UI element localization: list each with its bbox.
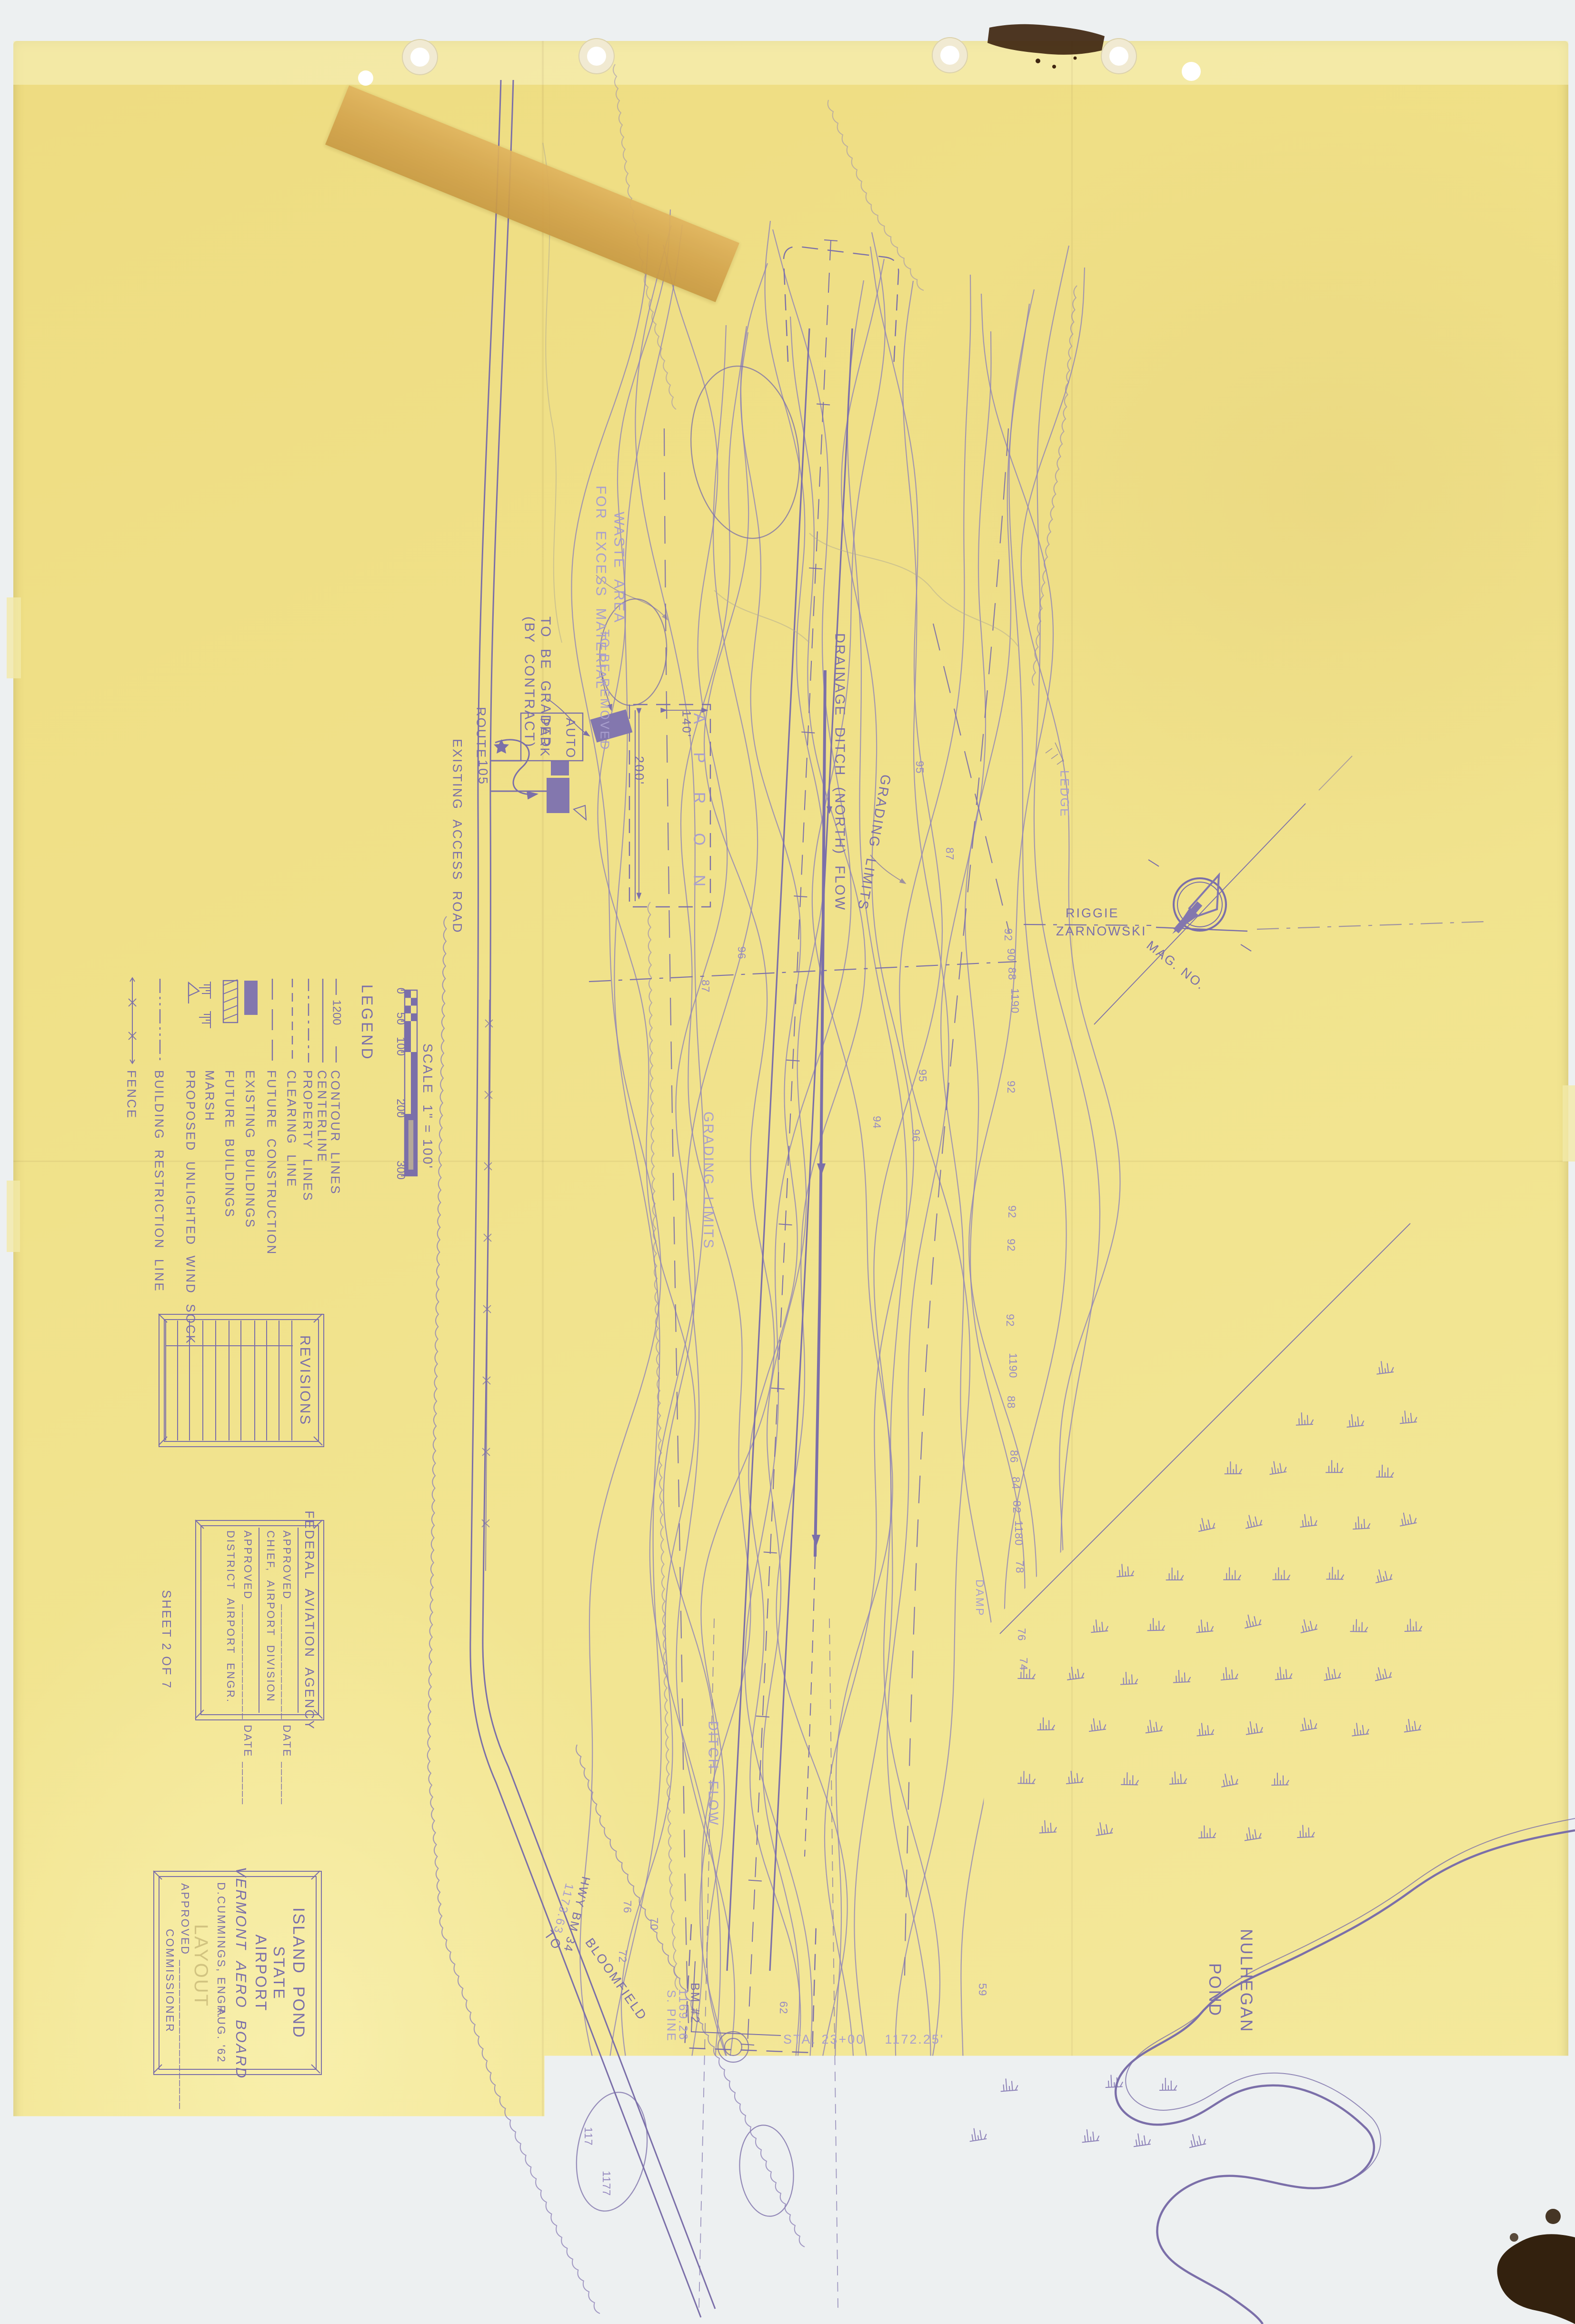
legend-item-contour-lines: CONTOUR LINES [329, 1070, 341, 1195]
fence-symbol [129, 978, 136, 1063]
map-label: 92 [1007, 1205, 1018, 1219]
marsh-symbol [1326, 1460, 1343, 1472]
north-arrow [1094, 756, 1352, 1024]
marsh-symbol [1272, 1567, 1290, 1579]
scale-tick-label: 0 [394, 988, 407, 994]
marsh-symbol [1038, 1819, 1057, 1833]
map-label: GRADING LIMITS [701, 1112, 715, 1250]
map-label: DAMP [974, 1579, 986, 1617]
tree-line [828, 100, 924, 290]
marsh-symbol [1220, 1666, 1238, 1680]
marsh-symbol [1186, 2132, 1206, 2148]
revisions-column-line [215, 1321, 216, 1440]
marsh-symbol [1121, 1772, 1138, 1785]
future-buildings-symbol [223, 980, 238, 1023]
faa-role-1: CHIEF, AIRPORT DIVISION [264, 1530, 277, 1702]
map-label: 140' [680, 710, 692, 738]
marsh-symbol [1066, 1665, 1085, 1680]
faa-divider-2 [259, 1528, 259, 1713]
map-label: BM #2 [688, 1983, 701, 2024]
marsh-symbol [1195, 1619, 1214, 1632]
faa-divider [298, 1528, 299, 1713]
existing-buildings-symbol [244, 981, 258, 1015]
revisions-column-line [291, 1321, 292, 1440]
map-label: 74 [1018, 1658, 1029, 1671]
tree-line [428, 916, 600, 2314]
edge-tape [1563, 1085, 1575, 1162]
title-org: VERMONT AERO BOARD [232, 1867, 249, 2079]
marsh-symbol [1298, 1513, 1317, 1527]
stains [987, 24, 1575, 2324]
faa-title: FEDERAL AVIATION AGENCY [302, 1510, 317, 1730]
edge-tape [7, 1181, 20, 1252]
map-label: 1177 [601, 2171, 612, 2196]
faa-approved-2: APPROVED ________________ DATE ______ [241, 1530, 254, 1806]
marsh-symbol [1296, 1825, 1315, 1838]
marsh-symbol [1166, 1568, 1184, 1580]
map-label: 1169.26 [677, 1989, 689, 2041]
legend-item-future-buildings: FUTURE BUILDINGS [223, 1070, 236, 1218]
map-label: 76 [622, 1900, 633, 1914]
marsh-symbol [1065, 1770, 1084, 1784]
marsh-symbol [1326, 1567, 1344, 1579]
map-label: 92 [1003, 928, 1014, 942]
marsh-symbol [1087, 1717, 1106, 1732]
legend-symbols: 1200 [129, 978, 343, 1063]
contour-line [745, 229, 851, 2167]
marsh-symbol [1224, 1461, 1242, 1474]
existing-building [547, 778, 569, 813]
marsh-symbol [1242, 1612, 1262, 1628]
title-date: AUG. '62 [215, 2008, 228, 2064]
contour-line [812, 232, 893, 2222]
legend-item-clearing-line: CLEARING LINE [285, 1070, 298, 1188]
map-label: 82 [1011, 1500, 1023, 1514]
marsh-symbol [1298, 1617, 1318, 1633]
marsh-symbol [1296, 1412, 1314, 1425]
map-label: 59 [977, 1983, 988, 1996]
tree-line [1032, 286, 1077, 685]
marsh-symbol [1404, 1619, 1422, 1631]
map-label: 78 [1014, 1560, 1026, 1574]
title-approved: APPROVED ____________________ [179, 1883, 191, 2110]
title-block: ISLAND POND STATE AIRPORT VERMONT AERO B… [153, 1871, 322, 2075]
title-line3: AIRPORT [252, 1934, 269, 2012]
marsh-symbol [199, 982, 210, 1028]
marsh-symbol [1159, 2078, 1177, 2090]
scale-bar: 050100200300 [394, 988, 417, 1180]
marsh-symbol [1346, 1413, 1364, 1427]
contour-line [1021, 268, 1120, 2205]
map-label: NULHEGAN [1237, 1929, 1255, 2033]
faa-approved-1: APPROVED ________________ DATE ______ [280, 1530, 293, 1806]
legend-item-existing-buildings: EXISTING BUILDINGS [243, 1070, 256, 1229]
map-label: 95 [914, 761, 926, 774]
map-label: 62 [778, 2001, 789, 2015]
marsh-symbol [1298, 1716, 1317, 1731]
marsh-symbol [1027, 2233, 1047, 2248]
marsh-symbol [1376, 1465, 1394, 1477]
marsh-symbol [1397, 1510, 1417, 1526]
title-line2: STATE [270, 1946, 288, 2000]
legend-title: LEGEND [358, 984, 376, 1062]
dark-stain-bottom-right [1497, 2234, 1575, 2324]
map-label: 84 [1010, 1477, 1022, 1490]
map-label: DITCH FLOW [706, 1721, 720, 1827]
star-marker [494, 739, 509, 754]
map-label: AUTO [564, 718, 577, 759]
marsh-symbol [1352, 1516, 1370, 1529]
contour-line [1005, 289, 1067, 2175]
map-label: 92 [1005, 1314, 1016, 1327]
map-label: TO BE REMOVED [598, 629, 611, 751]
marsh-symbol [1196, 1516, 1216, 1531]
marsh-symbol [1350, 1721, 1369, 1736]
legend-item-future-construction: FUTURE CONSTRUCTION [265, 1070, 278, 1255]
runway-end-turnaround-future [784, 247, 898, 367]
revisions-column-line [279, 1321, 279, 1440]
marsh-symbol [1000, 2077, 1018, 2091]
legend-item-building-restriction-line: BUILDING RESTRICTION LINE [152, 1070, 165, 1292]
map-label: EXISTING ACCESS ROAD [450, 739, 464, 934]
map-label: 96 [910, 1129, 922, 1142]
punch-hole [940, 46, 959, 65]
map-label: 87 [700, 980, 711, 993]
map-label: 1180 [1013, 1520, 1025, 1546]
map-label: 1190 [1009, 988, 1021, 1013]
marsh-symbol [1198, 1825, 1216, 1838]
contour-line [887, 281, 949, 2218]
scale-tick-label: 300 [394, 1161, 407, 1180]
map-label: ROUTE [474, 707, 488, 759]
marsh-symbol [968, 2126, 987, 2141]
map-label: 95 [917, 1069, 928, 1083]
legend-item-centerline: CENTERLINE [315, 1070, 328, 1163]
contour-line [741, 332, 801, 2113]
svg-text:1200: 1200 [330, 1000, 343, 1025]
marsh-symbol [1219, 1771, 1238, 1787]
map-label: WASTE AREA [611, 512, 627, 624]
map-label: 70 [648, 1917, 660, 1931]
marsh-symbol [1081, 2128, 1100, 2143]
legend-item-marsh: MARSH [203, 1070, 216, 1122]
marsh-symbol-field [968, 1360, 1422, 2253]
punch-hole [1109, 47, 1128, 66]
contour-line [969, 294, 1053, 2179]
marsh-symbol [1375, 1360, 1394, 1374]
marsh-symbol [1322, 1665, 1341, 1680]
title-engineer: D.CUMMINGS, ENGR. [215, 1882, 228, 2019]
title-line1: ISLAND POND [289, 1907, 308, 2039]
dark-smudge-top [987, 24, 1105, 55]
scanned-blueprint-page: 1200 050100200300 [0, 0, 1575, 2324]
map-label: 1190 [1007, 1353, 1019, 1378]
contour-lines-symbol: 1200 [330, 979, 343, 1063]
scale-tick-label: 100 [394, 1037, 407, 1056]
marsh-symbol [1128, 2236, 1147, 2251]
punch-hole [587, 47, 606, 66]
marsh-symbol [1132, 2132, 1151, 2146]
marsh-symbol [1037, 1717, 1055, 1729]
map-label: S. PINE [665, 1990, 677, 2042]
punch-hole [1182, 62, 1201, 81]
map-label: 200' [632, 756, 646, 785]
wind-sock-symbol [574, 805, 586, 820]
marsh-symbol [1079, 2237, 1099, 2253]
contour-line [1034, 246, 1100, 2183]
map-label: POND [1206, 1963, 1223, 2017]
revisions-column-line [240, 1321, 241, 1440]
edge-tape [7, 597, 21, 678]
map-label: A P R O N [690, 713, 708, 899]
marsh-symbol [1271, 1772, 1289, 1785]
marsh-symbol [1402, 1718, 1421, 1732]
revisions-column-line [229, 1321, 229, 1440]
sheet-number-label: SHEET 2 OF 7 [159, 1590, 174, 1689]
map-label: 90 [1006, 948, 1017, 962]
marsh-symbol [1243, 1826, 1262, 1840]
revisions-title: REVISIONS [297, 1335, 313, 1426]
punch-hole [358, 70, 373, 86]
map-label: 88 [1007, 967, 1018, 981]
scale-tick-label: 50 [394, 1012, 407, 1025]
marsh-symbol [1025, 2134, 1042, 2146]
runway-end-inner-line [691, 1961, 781, 2036]
property-lines [589, 922, 1485, 1634]
revisions-column-line [254, 1321, 255, 1440]
marsh-symbol [1398, 1410, 1417, 1423]
map-label: 76 [1016, 1628, 1027, 1641]
revisions-column-line [266, 1321, 267, 1440]
marsh-symbol [1144, 1718, 1163, 1733]
marsh-symbol [1267, 1460, 1287, 1474]
marsh-symbol [1116, 1563, 1134, 1577]
revisions-column-line [202, 1321, 203, 1440]
map-label: DRAINAGE DITCH (NORTH) FLOW [832, 633, 847, 911]
fence-line [482, 1000, 493, 1571]
marsh-symbol [1243, 1512, 1263, 1529]
marsh-symbol [1181, 2238, 1201, 2253]
marsh-symbol [1049, 2181, 1067, 2193]
map-label: 92 [1006, 1239, 1017, 1252]
marsh-symbol [1372, 1665, 1392, 1681]
map-label: 86 [1008, 1450, 1020, 1463]
map-label: RIGGIE [1066, 906, 1119, 920]
marsh-symbol [1120, 1671, 1138, 1685]
title-approved-role: COMMISSIONER [163, 1929, 176, 2033]
marsh-symbol [1173, 1669, 1191, 1683]
ledge-hachures [1046, 743, 1064, 765]
map-label: 105 [476, 760, 489, 785]
map-label: 117 [583, 2127, 594, 2146]
legend-item-property-lines: PROPERTY LINES [301, 1070, 314, 1202]
punch-hole [410, 48, 429, 67]
faa-approval-box: FEDERAL AVIATION AGENCY APPROVED _______… [195, 1520, 324, 1720]
map-label: 94 [871, 1116, 883, 1129]
nulhegan-pond-shoreline [1116, 1818, 1575, 2324]
marsh-symbol [1244, 1719, 1264, 1734]
legend-item-proposed-wind-sock: PROPOSED UNLIGHTED WIND SOCK [184, 1070, 197, 1345]
map-label: 88 [1006, 1396, 1017, 1409]
contour-line [676, 325, 758, 2210]
marsh-symbol [1373, 1567, 1393, 1583]
map-label: PARK [538, 718, 551, 758]
marsh-symbol [1350, 1619, 1368, 1632]
roads [470, 80, 715, 2317]
scale-label: SCALE 1" = 100' [420, 1043, 435, 1170]
contour-line [598, 209, 695, 2199]
revisions-divider [166, 1345, 293, 1346]
contour-line [847, 280, 907, 2113]
runway-edge-left [727, 328, 809, 1971]
marsh-symbol [1094, 1820, 1113, 1836]
map-label: 96 [736, 946, 748, 960]
marsh-symbol [1196, 1722, 1214, 1736]
map-label: 92 [1006, 1081, 1017, 1094]
map-label: LEDGE [1058, 770, 1070, 818]
faa-inner-border [200, 1525, 319, 1715]
map-label: (BY CONTRACT) [522, 616, 536, 748]
marsh-symbol [1090, 1619, 1108, 1632]
marsh-symbol [1223, 1567, 1241, 1579]
scale-tick-label: 200 [394, 1099, 407, 1118]
map-label: 72 [617, 1950, 628, 1963]
proposed-wind-sock-symbol [189, 983, 199, 1003]
existing-building [551, 761, 569, 775]
marsh-symbol [1274, 1666, 1292, 1679]
map-label: ZARNOWSKI [1056, 924, 1147, 938]
legend-item-fence: FENCE [125, 1070, 138, 1119]
map-label: 87 [944, 847, 956, 861]
revisions-column-line [165, 1321, 166, 1440]
marsh-symbol [1168, 1771, 1186, 1784]
faa-role-2: DISTRICT AIRPORT ENGR. [224, 1530, 237, 1703]
revisions-column-line [177, 1321, 178, 1440]
map-label: STA. 23+00 1172.25' [783, 2033, 944, 2046]
marsh-symbol [1017, 1771, 1035, 1783]
title-stamp: LAYOUT [190, 1924, 211, 2007]
marsh-symbol [1147, 1618, 1165, 1630]
